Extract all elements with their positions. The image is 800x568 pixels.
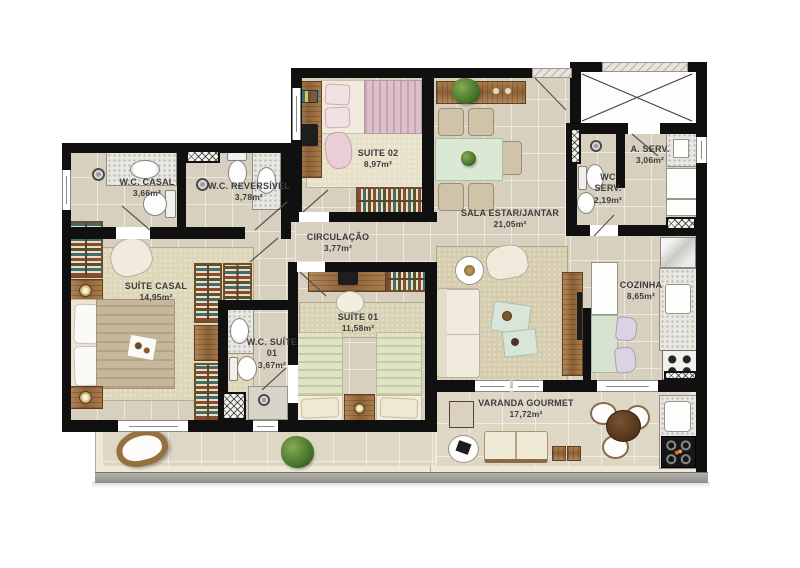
door-wc-suite-01 (288, 365, 298, 403)
window-suite-02 (292, 88, 301, 140)
suite01-pillow (380, 397, 419, 419)
varanda-side-table (449, 401, 474, 428)
wall-shaft-top-a (570, 62, 602, 72)
room-area: 8,65m² (620, 291, 662, 302)
room-area: 3,66m² (120, 188, 175, 199)
sofa (436, 288, 480, 378)
plant-icon (452, 78, 480, 104)
room-label-wc-serv: WC SERV. 2,19m² (591, 172, 625, 205)
suite02-pillow (324, 106, 350, 128)
suite01-desk-chair (336, 291, 364, 313)
floor-plan: W.C. CASAL 3,66m² W.C. REVERSÍVEL 3,78m²… (0, 0, 800, 568)
tv-icon (577, 292, 582, 340)
room-label-cozinha: COZINHA 8,65m² (620, 280, 662, 302)
parapet (95, 472, 708, 483)
sideboard-bowl (492, 87, 500, 95)
lamp-icon (79, 284, 92, 297)
room-name: SUÍTE 01 (338, 312, 379, 323)
wall-wcsuite01-top (218, 300, 298, 310)
suite01-blanket (376, 332, 422, 396)
varanda-stool (567, 446, 581, 461)
room-name: SUÍTE CASAL (125, 281, 187, 292)
a-serv-tank-basin (673, 139, 689, 158)
room-name: W.C. REVERSÍVEL (208, 181, 290, 192)
door-wc-casal (116, 227, 150, 239)
duct-varanda (664, 371, 697, 380)
wall-leftblock-bottom-b (150, 227, 245, 239)
suite01-blanket (297, 332, 343, 396)
room-area: 3,78m² (208, 192, 290, 203)
suite02-wardrobe (356, 187, 429, 215)
kitchen-sink (665, 284, 691, 314)
room-area: 3,77m² (307, 243, 370, 254)
room-label-sala: SALA ESTAR/JANTAR 21,05m² (461, 208, 559, 230)
room-name: WC SERV. (591, 172, 625, 195)
grill-sink (664, 401, 691, 432)
sideboard-bowl (504, 87, 512, 95)
sliding-door-cozinha (597, 380, 658, 392)
a-serv-cabinet (666, 199, 697, 216)
side-table-center (464, 265, 475, 276)
kitchen-table (591, 315, 618, 373)
wall-sala-left-upper (422, 68, 434, 218)
varanda-sofa (484, 431, 548, 463)
room-area: 14,95m² (125, 292, 187, 303)
room-label-varanda: VARANDA GOURMET 17,72m² (478, 398, 574, 420)
room-area: 3,67m² (245, 360, 299, 371)
varanda-stool (552, 446, 566, 461)
door-suite-01 (297, 262, 325, 272)
entrance-threshold (532, 68, 572, 78)
dining-chair (468, 183, 494, 211)
kitchen-white-counter (591, 262, 618, 315)
grill-icon (661, 436, 696, 468)
dining-chair (500, 141, 522, 175)
window-wc-casal (62, 170, 71, 210)
room-label-suite-02: SUITE 02 8,97m² (358, 148, 399, 170)
dining-chair (468, 108, 494, 136)
room-area: 3,06m² (630, 155, 669, 166)
room-area: 11,58m² (338, 323, 379, 334)
coffee-table (502, 328, 539, 357)
room-label-wc-suite-01: W.C. SUÍTE 01 3,67m² (245, 337, 299, 370)
suite02-pillow (324, 83, 350, 105)
sliding-door-suite-casal (118, 420, 188, 432)
room-area: 2,19m² (591, 195, 625, 206)
sideboard (436, 81, 526, 104)
lamp-icon (354, 403, 365, 414)
room-name: CIRCULAÇÃO (307, 232, 370, 243)
varanda-dining-table (606, 410, 641, 442)
room-area: 8,97m² (358, 159, 399, 170)
room-name: VARANDA GOURMET (478, 398, 574, 409)
room-label-wc-reversivel: W.C. REVERSÍVEL 3,78m² (208, 181, 290, 203)
shower-icon (92, 168, 105, 181)
suite01-laptop (338, 270, 358, 285)
room-label-suite-casal: SUÍTE CASAL 14,95m² (125, 281, 187, 303)
wall-top-main (291, 68, 532, 78)
washing-machine (666, 168, 697, 199)
suite01-pillow (301, 397, 340, 419)
room-area: 21,05m² (461, 219, 559, 230)
room-label-suite-01: SUÍTE 01 11,58m² (338, 312, 379, 334)
dining-chair (438, 108, 464, 136)
door-a-serv (628, 123, 660, 134)
wall-bedroom-bottom-b (278, 420, 437, 432)
room-name: SALA ESTAR/JANTAR (461, 208, 559, 219)
kitchen-chair (614, 346, 638, 374)
duct-wc-serv (570, 128, 581, 164)
hall-marble-strip (602, 62, 688, 72)
door-suite-02 (299, 212, 329, 222)
coffee-table-decor (502, 311, 512, 321)
fridge (660, 237, 696, 268)
room-label-a-serv: A. SERV. 3,06m² (630, 144, 669, 166)
wall-wc-divider (177, 143, 186, 236)
sliding-door-wc-suite01 (253, 420, 278, 432)
shower-icon (590, 140, 602, 152)
room-area: 17,72m² (478, 409, 574, 420)
door-wc-serv (590, 225, 618, 236)
dining-chair (438, 183, 464, 211)
wall-leftblock-bottom-a (62, 227, 116, 239)
breakfast-tray (126, 334, 158, 362)
plant-icon (281, 436, 314, 468)
lamp-icon (79, 391, 92, 404)
room-name: A. SERV. (630, 144, 669, 155)
duct-a-serv (666, 217, 696, 230)
sliding-door-sala-b (513, 380, 543, 392)
wall-cozinha-partial (583, 308, 591, 386)
table-centerpiece-plant-icon (461, 151, 476, 166)
suite02-blanket (364, 80, 422, 134)
room-name: SUITE 02 (358, 148, 399, 159)
shower-icon (258, 394, 270, 406)
room-name: COZINHA (620, 280, 662, 291)
wall-sala-left-lower (425, 262, 437, 382)
room-label-wc-casal: W.C. CASAL 3,66m² (120, 177, 175, 199)
coffee-table-decor (511, 338, 519, 346)
room-label-circulacao: CIRCULAÇÃO 3,77m² (307, 232, 370, 254)
duct-wc-reversivel (186, 150, 220, 163)
sliding-door-sala-a (475, 380, 510, 392)
room-name: W.C. CASAL (120, 177, 175, 188)
room-name: W.C. SUÍTE 01 (245, 337, 299, 360)
window-a-serv (696, 137, 707, 163)
shaft-interior (581, 72, 696, 123)
suite02-computer (301, 124, 318, 146)
duct-wc-suite01 (222, 392, 246, 420)
wall-bottomleft-L (62, 420, 120, 432)
